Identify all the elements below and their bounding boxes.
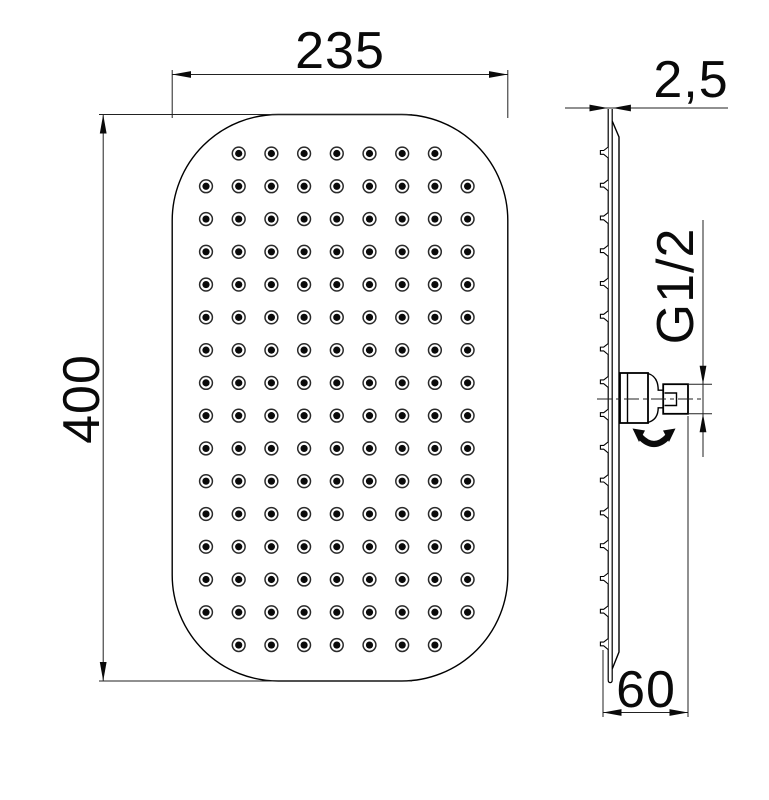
- nozzle-hole-center: [399, 150, 406, 157]
- nozzle-hole-center: [366, 445, 373, 452]
- bell-taper-top: [648, 374, 663, 391]
- nozzle-hole-center: [431, 379, 438, 386]
- nozzle-hole-center: [399, 412, 406, 419]
- arrowhead-right-icon: [489, 71, 508, 78]
- nozzle-hole-center: [366, 215, 373, 222]
- nozzle-hole-center: [366, 478, 373, 485]
- nozzle-hole-center: [464, 412, 471, 419]
- nozzle-hole-center: [235, 281, 242, 288]
- dimension-thread: G1/2: [647, 220, 712, 457]
- nozzle-tooth-profile: [600, 475, 608, 486]
- nozzle-hole-center: [333, 510, 340, 517]
- dim-thread-label: G1/2: [647, 228, 705, 345]
- nozzle-hole-center: [202, 379, 209, 386]
- nozzle-hole-center: [399, 641, 406, 648]
- nozzle-hole-center: [431, 215, 438, 222]
- nozzle-hole-center: [366, 183, 373, 190]
- nozzle-hole-center: [366, 248, 373, 255]
- nozzle-tooth-profile: [600, 573, 608, 584]
- nozzle-hole-center: [431, 641, 438, 648]
- nozzle-hole-center: [333, 150, 340, 157]
- nozzle-hole-center: [464, 510, 471, 517]
- nozzle-hole-center: [399, 510, 406, 517]
- nozzle-hole-center: [366, 347, 373, 354]
- front-view: [172, 115, 508, 682]
- nozzle-hole-center: [399, 379, 406, 386]
- technical-drawing: 235 400: [0, 0, 769, 800]
- nozzle-hole-center: [202, 314, 209, 321]
- nozzle-hole-center: [431, 314, 438, 321]
- nozzle-hole-center: [366, 281, 373, 288]
- nozzle-tooth-profile: [600, 376, 608, 387]
- nozzle-teeth: [600, 147, 608, 650]
- nozzle-hole-center: [333, 183, 340, 190]
- nozzle-hole-center: [333, 379, 340, 386]
- nozzle-hole-center: [464, 281, 471, 288]
- nozzle-hole-center: [268, 478, 275, 485]
- nozzle-hole-center: [366, 510, 373, 517]
- nozzle-hole-center: [268, 183, 275, 190]
- nozzle-hole-center: [333, 609, 340, 616]
- arrowhead-left-icon: [613, 105, 631, 112]
- nozzle-hole-center: [301, 183, 308, 190]
- nozzle-hole-center: [268, 215, 275, 222]
- nozzle-hole-center: [268, 576, 275, 583]
- nozzle-hole-center: [399, 248, 406, 255]
- nozzle-hole-center: [366, 379, 373, 386]
- nozzle-tooth-profile: [600, 606, 608, 617]
- nozzle-hole-center: [333, 641, 340, 648]
- nozzle-hole-center: [268, 379, 275, 386]
- nozzle-hole-center: [431, 347, 438, 354]
- nozzle-hole-center: [333, 543, 340, 550]
- nozzle-hole-center: [399, 215, 406, 222]
- nozzle-hole-center: [431, 248, 438, 255]
- arrowhead-down-icon: [100, 662, 107, 681]
- nozzle-hole-center: [366, 150, 373, 157]
- nozzle-hole-center: [333, 248, 340, 255]
- nozzle-hole-center: [301, 248, 308, 255]
- nozzle-tooth-profile: [600, 180, 608, 191]
- nozzle-tooth-profile: [600, 639, 608, 650]
- nozzle-hole-center: [235, 412, 242, 419]
- nozzle-hole-center: [268, 281, 275, 288]
- nozzle-hole-center: [399, 281, 406, 288]
- nozzle-hole-center: [268, 609, 275, 616]
- nozzle-hole-center: [301, 412, 308, 419]
- nozzle-hole-center: [399, 314, 406, 321]
- nozzle-hole-center: [301, 609, 308, 616]
- dimension-thickness: 2,5: [565, 51, 729, 111]
- nozzle-hole-center: [399, 445, 406, 452]
- arrowhead-up-icon: [700, 414, 707, 433]
- nozzle-hole-center: [268, 412, 275, 419]
- dim-width-label: 235: [295, 22, 385, 80]
- nozzle-tooth-profile: [600, 409, 608, 420]
- nozzle-hole-center: [235, 543, 242, 550]
- nozzle-hole-center: [202, 183, 209, 190]
- nozzle-hole-center: [202, 412, 209, 419]
- nozzle-hole-center: [464, 215, 471, 222]
- nozzle-hole-center: [366, 412, 373, 419]
- nozzle-hole-center: [235, 576, 242, 583]
- nozzle-tooth-profile: [600, 245, 608, 256]
- nozzle-hole-center: [431, 183, 438, 190]
- nozzle-hole-center: [202, 347, 209, 354]
- nozzle-tooth-profile: [600, 344, 608, 355]
- nozzle-tooth-profile: [600, 540, 608, 551]
- nozzle-hole-center: [301, 510, 308, 517]
- mounting-flange: [620, 373, 648, 423]
- nozzle-hole-center: [301, 445, 308, 452]
- nozzle-hole-center: [301, 314, 308, 321]
- nozzle-hole-center: [235, 641, 242, 648]
- nozzle-tooth-profile: [600, 147, 608, 158]
- nozzle-tooth-profile: [600, 311, 608, 322]
- nozzle-hole-center: [235, 314, 242, 321]
- nozzle-hole-center: [235, 445, 242, 452]
- nozzle-hole-center: [268, 445, 275, 452]
- nozzle-hole-center: [333, 215, 340, 222]
- nozzle-hole-center: [399, 478, 406, 485]
- nozzle-hole-center: [235, 248, 242, 255]
- nozzle-hole-center: [333, 412, 340, 419]
- nozzle-hole-center: [399, 576, 406, 583]
- nozzle-hole-center: [235, 379, 242, 386]
- nozzle-hole-center: [301, 379, 308, 386]
- drawing-canvas: 235 400: [0, 0, 769, 800]
- nozzle-tooth-profile: [600, 507, 608, 518]
- nozzle-hole-center: [301, 347, 308, 354]
- nozzle-hole-center: [301, 281, 308, 288]
- nozzle-hole-center: [202, 543, 209, 550]
- nozzle-hole-center: [464, 543, 471, 550]
- nozzle-hole-center: [235, 347, 242, 354]
- nozzle-hole-center: [431, 412, 438, 419]
- dim-depth-label: 60: [616, 661, 676, 719]
- nozzle-hole-center: [301, 543, 308, 550]
- nozzle-hole-center: [464, 379, 471, 386]
- nozzle-hole-center: [431, 150, 438, 157]
- nozzle-hole-center: [202, 281, 209, 288]
- nozzle-hole-center: [333, 347, 340, 354]
- arrowhead-up-icon: [100, 115, 107, 134]
- nozzle-hole-center: [333, 314, 340, 321]
- nozzle-hole-center: [464, 609, 471, 616]
- nozzle-hole-center: [333, 281, 340, 288]
- nozzle-hole-center: [301, 641, 308, 648]
- nozzle-hole-center: [464, 183, 471, 190]
- nozzle-hole-center: [464, 314, 471, 321]
- swivel-rotation-icon: [633, 429, 676, 445]
- nozzle-hole-center: [431, 543, 438, 550]
- nozzle-hole-center: [268, 641, 275, 648]
- nozzle-hole-center: [333, 445, 340, 452]
- nozzle-hole-center: [464, 478, 471, 485]
- nozzle-hole-center: [235, 478, 242, 485]
- nozzle-tooth-profile: [600, 278, 608, 289]
- dimension-height: 400: [53, 115, 412, 682]
- nozzle-hole-center: [268, 543, 275, 550]
- nozzle-hole-center: [268, 150, 275, 157]
- nozzle-hole-center: [301, 150, 308, 157]
- arrowhead-left-icon: [172, 71, 191, 78]
- nozzle-hole-center: [268, 347, 275, 354]
- nozzle-hole-center: [333, 576, 340, 583]
- nozzle-hole-center: [235, 609, 242, 616]
- nozzle-hole-center: [464, 445, 471, 452]
- nozzle-hole-center: [464, 248, 471, 255]
- nozzle-hole-center: [235, 150, 242, 157]
- nozzle-hole-center: [431, 445, 438, 452]
- nozzle-hole-center: [235, 183, 242, 190]
- nozzle-hole-center: [268, 510, 275, 517]
- nozzle-hole-center: [333, 478, 340, 485]
- nozzle-hole-center: [235, 215, 242, 222]
- dim-thickness-label: 2,5: [653, 51, 728, 109]
- nozzle-hole-center: [431, 281, 438, 288]
- nozzle-hole-center: [399, 543, 406, 550]
- nozzle-hole-center: [202, 609, 209, 616]
- nozzle-hole-center: [268, 248, 275, 255]
- nozzle-hole-center: [268, 314, 275, 321]
- nozzle-hole-center: [431, 576, 438, 583]
- side-view: [597, 109, 702, 683]
- nozzle-hole-center: [464, 576, 471, 583]
- nozzle-hole-center: [366, 609, 373, 616]
- dimension-depth: 60: [603, 416, 688, 719]
- nozzle-hole-center: [301, 478, 308, 485]
- nozzle-hole-center: [235, 510, 242, 517]
- nozzle-hole-center: [202, 248, 209, 255]
- arrowhead-right-icon: [590, 105, 608, 112]
- nozzle-hole-center: [202, 215, 209, 222]
- dimension-width: 235: [172, 22, 508, 118]
- nozzle-hole-center: [301, 215, 308, 222]
- nozzle-hole-center: [301, 576, 308, 583]
- nozzle-hole-center: [431, 478, 438, 485]
- nozzle-hole-center: [202, 478, 209, 485]
- nozzle-hole-center: [464, 347, 471, 354]
- head-body-back-profile: [612, 121, 619, 669]
- nozzle-hole-center: [399, 183, 406, 190]
- bell-taper-bottom: [648, 408, 663, 423]
- nozzle-hole-center: [366, 576, 373, 583]
- shower-head-faceplate-outline: [172, 115, 508, 682]
- nozzle-hole-center: [202, 576, 209, 583]
- nozzle-hole-center: [366, 314, 373, 321]
- nozzle-tooth-profile: [600, 213, 608, 224]
- nozzle-hole-center: [399, 609, 406, 616]
- nozzle-hole-center: [366, 543, 373, 550]
- nozzle-hole-center: [366, 641, 373, 648]
- nozzle-hole-center: [399, 347, 406, 354]
- nozzle-grid: [200, 147, 474, 651]
- nozzle-hole-center: [431, 510, 438, 517]
- nozzle-hole-center: [202, 445, 209, 452]
- nozzle-hole-center: [202, 510, 209, 517]
- faceplate-edge-profile: [608, 109, 612, 683]
- dim-height-label: 400: [53, 354, 111, 444]
- nozzle-hole-center: [431, 609, 438, 616]
- nozzle-tooth-profile: [600, 442, 608, 453]
- arrowhead-down-icon: [700, 366, 707, 385]
